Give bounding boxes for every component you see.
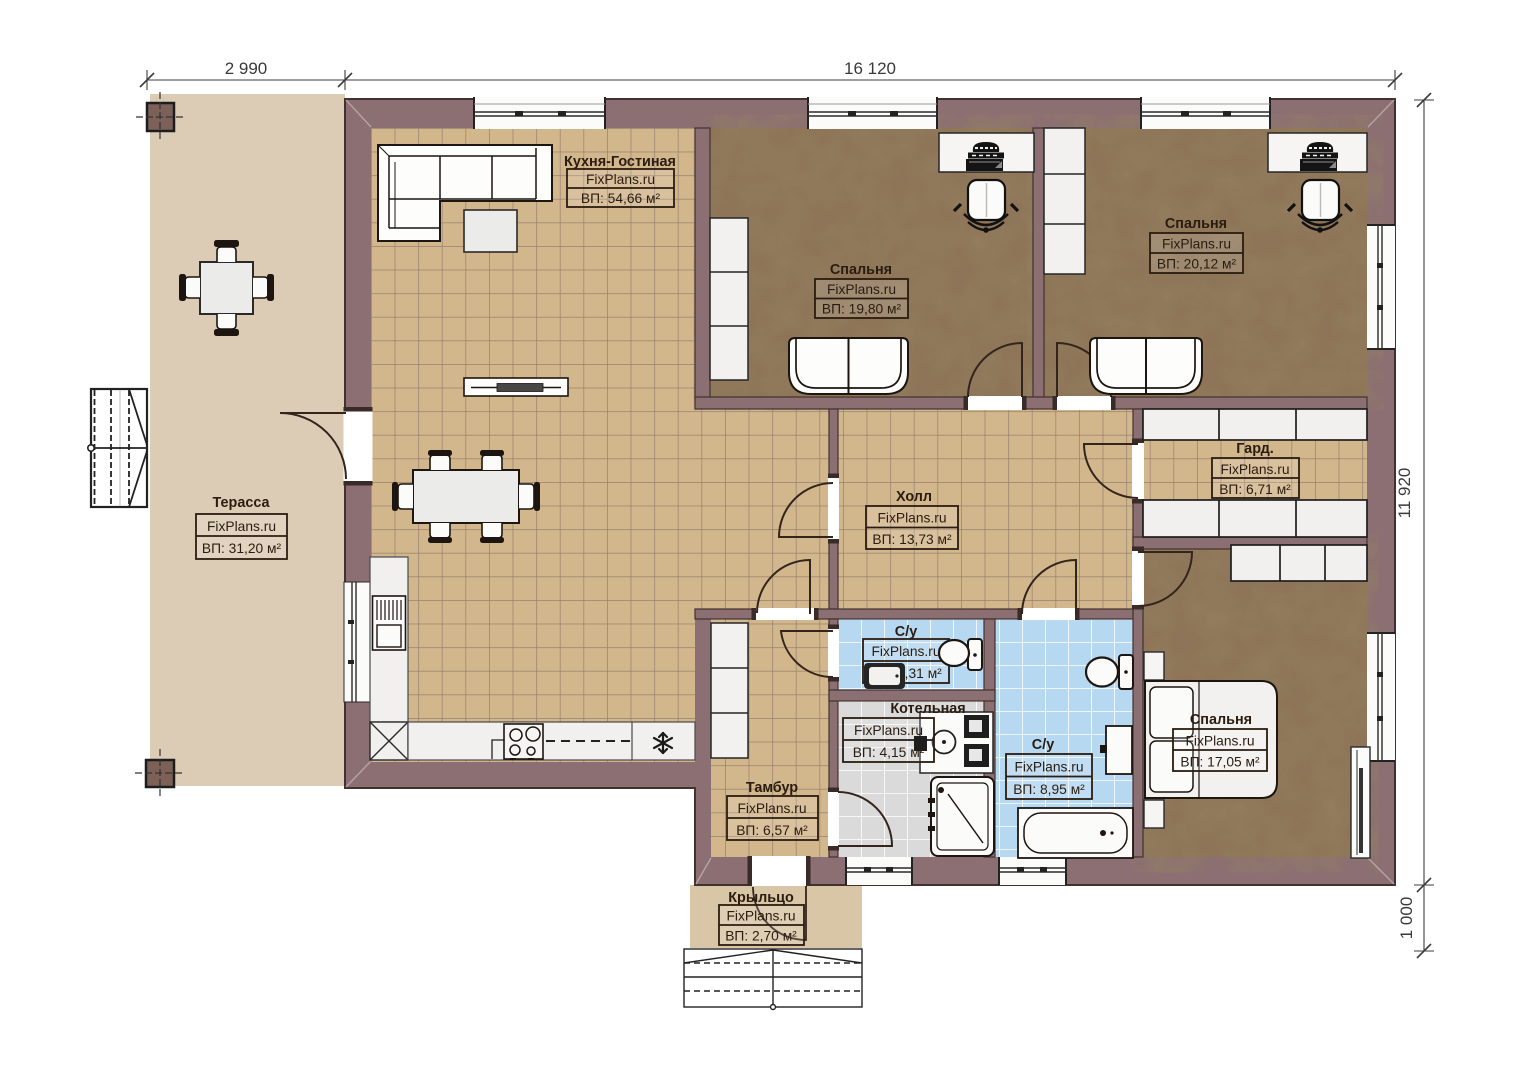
svg-text:Спальня: Спальня	[1165, 216, 1227, 232]
svg-text:FixPlans.ru: FixPlans.ru	[726, 909, 795, 924]
svg-text:ВП: 2,70 м²: ВП: 2,70 м²	[725, 929, 797, 944]
svg-text:FixPlans.ru: FixPlans.ru	[854, 723, 923, 738]
svg-text:FixPlans.ru: FixPlans.ru	[1162, 237, 1231, 252]
svg-text:FixPlans.ru: FixPlans.ru	[1185, 734, 1254, 749]
svg-text:FixPlans.ru: FixPlans.ru	[207, 519, 276, 534]
svg-text:Тамбур: Тамбур	[746, 780, 798, 796]
svg-text:FixPlans.ru: FixPlans.ru	[827, 282, 896, 297]
svg-text:ВП: 4,15 м²: ВП: 4,15 м²	[853, 745, 925, 760]
svg-text:Крыльцо: Крыльцо	[728, 890, 794, 906]
svg-text:ВП: 20,12 м²: ВП: 20,12 м²	[1157, 257, 1237, 272]
svg-text:FixPlans.ru: FixPlans.ru	[737, 801, 806, 816]
svg-text:С/у: С/у	[895, 624, 917, 640]
svg-text:FixPlans.ru: FixPlans.ru	[586, 172, 655, 187]
svg-text:ВП: 6,71 м²: ВП: 6,71 м²	[1219, 482, 1291, 497]
svg-text:16 120: 16 120	[844, 59, 896, 78]
svg-text:ВП: 8,95 м²: ВП: 8,95 м²	[1013, 782, 1085, 797]
svg-text:Спальня: Спальня	[1190, 712, 1252, 728]
svg-text:FixPlans.ru: FixPlans.ru	[1220, 462, 1289, 477]
svg-text:FixPlans.ru: FixPlans.ru	[871, 644, 940, 659]
svg-text:С/у: С/у	[1032, 737, 1054, 753]
svg-text:Гард.: Гард.	[1236, 441, 1274, 457]
svg-text:ВП: 54,66 м²: ВП: 54,66 м²	[581, 191, 661, 206]
svg-text:2 990: 2 990	[225, 59, 268, 78]
svg-text:FixPlans.ru: FixPlans.ru	[877, 511, 946, 526]
svg-text:FixPlans.ru: FixPlans.ru	[1014, 760, 1083, 775]
svg-text:ВП: 6,57 м²: ВП: 6,57 м²	[736, 823, 808, 838]
svg-text:ВП: 13,73 м²: ВП: 13,73 м²	[872, 532, 952, 547]
svg-text:11 920: 11 920	[1395, 468, 1414, 519]
svg-text:ВП: 31,20 м²: ВП: 31,20 м²	[202, 541, 282, 556]
svg-text:Терасса: Терасса	[212, 495, 270, 511]
svg-text:Котельная: Котельная	[890, 701, 965, 717]
svg-text:1 000: 1 000	[1397, 897, 1416, 940]
svg-text:ВП: 17,05 м²: ВП: 17,05 м²	[1180, 755, 1260, 770]
svg-text:Кухня-Гостиная: Кухня-Гостиная	[564, 154, 676, 170]
svg-text:Холл: Холл	[896, 489, 932, 505]
svg-text:ВП: 19,80 м²: ВП: 19,80 м²	[822, 302, 902, 317]
svg-text:Спальня: Спальня	[830, 262, 892, 278]
